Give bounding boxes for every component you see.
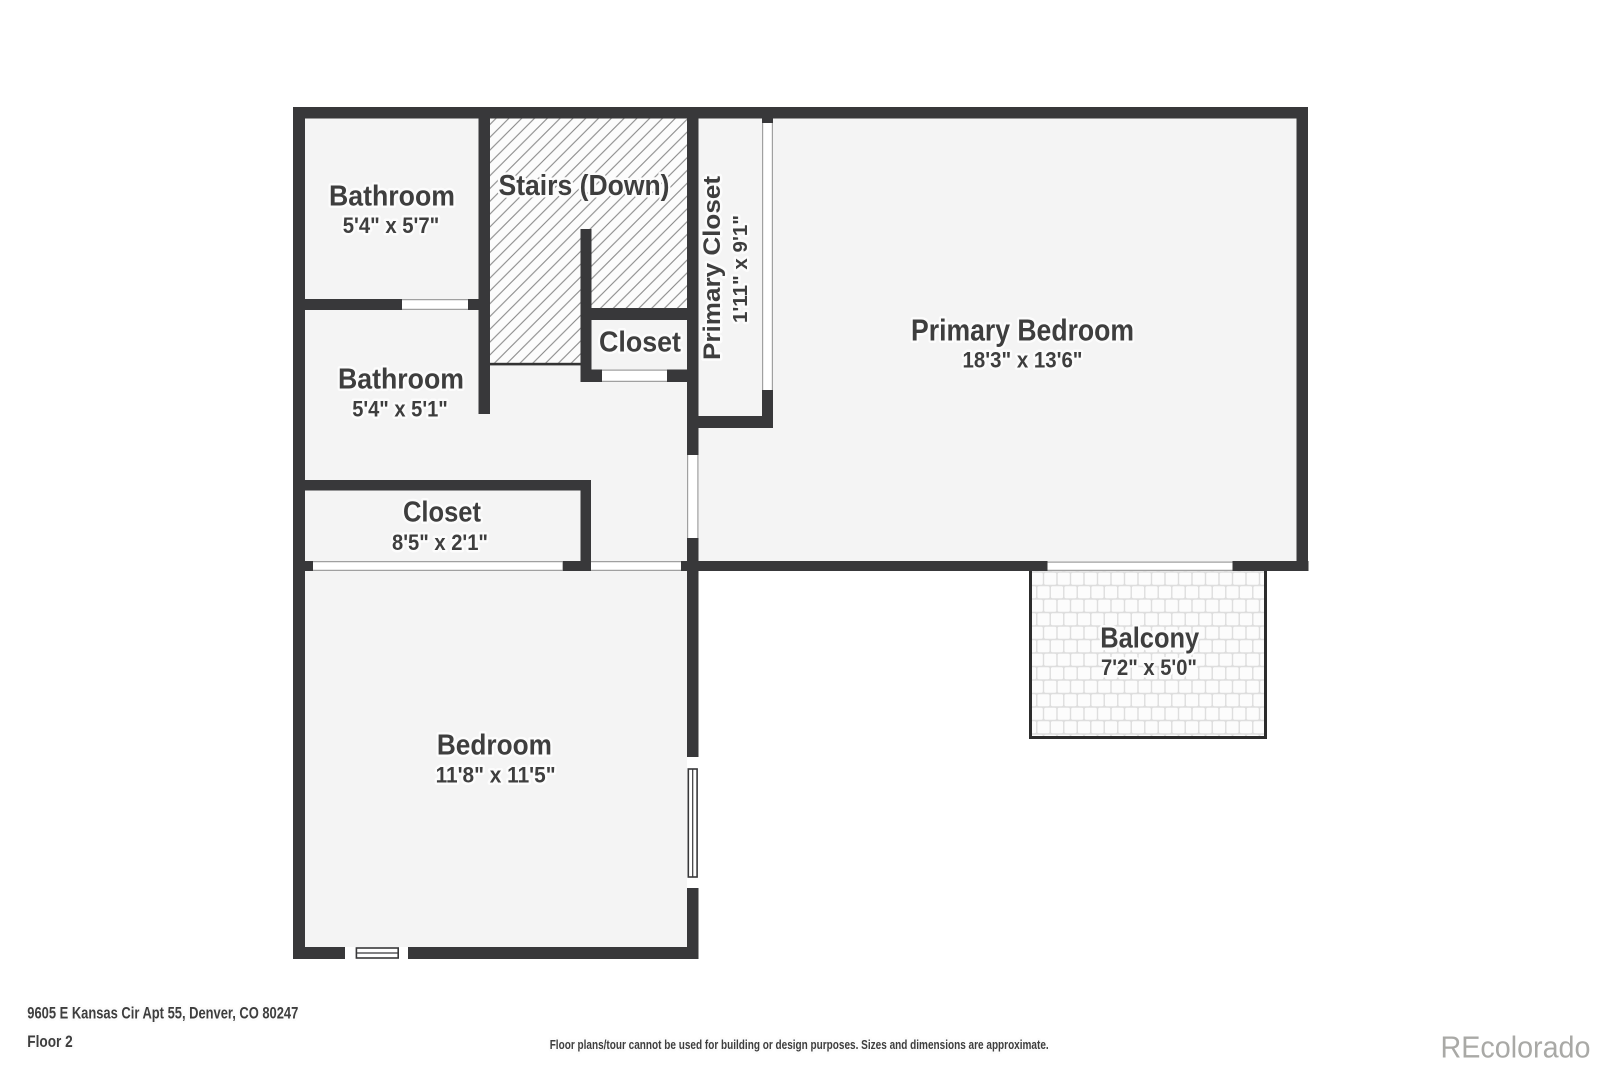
svg-text:9605 E Kansas Cir Apt 55, Denv: 9605 E Kansas Cir Apt 55, Denver, CO 802… (27, 1005, 298, 1023)
svg-text:Closet: Closet (403, 497, 481, 529)
svg-text:7'2" x 5'0": 7'2" x 5'0" (1101, 655, 1197, 680)
svg-text:Bathroom: Bathroom (338, 364, 464, 396)
svg-text:Floor plans/tour cannot be use: Floor plans/tour cannot be used for buil… (550, 1037, 1049, 1052)
svg-text:REcolorado: REcolorado (1441, 1031, 1591, 1065)
svg-text:5'4" x 5'1": 5'4" x 5'1" (352, 396, 448, 421)
svg-text:5'4" x 5'7": 5'4" x 5'7" (343, 213, 440, 238)
svg-text:Floor 2: Floor 2 (27, 1033, 72, 1051)
svg-text:Closet: Closet (599, 327, 681, 359)
svg-text:Balcony: Balcony (1100, 623, 1199, 655)
svg-text:18'3" x 13'6": 18'3" x 13'6" (963, 348, 1083, 373)
svg-text:8'5" x 2'1": 8'5" x 2'1" (392, 530, 488, 555)
svg-text:Primary Bedroom: Primary Bedroom (911, 312, 1134, 347)
svg-text:Bathroom: Bathroom (329, 181, 455, 213)
svg-text:Stairs (Down): Stairs (Down) (499, 170, 670, 202)
svg-text:1'11" x 9'1": 1'11" x 9'1" (730, 215, 752, 323)
svg-text:11'8" x 11'5": 11'8" x 11'5" (436, 763, 556, 788)
svg-text:Bedroom: Bedroom (437, 729, 552, 761)
svg-text:Primary Closet: Primary Closet (699, 176, 726, 360)
